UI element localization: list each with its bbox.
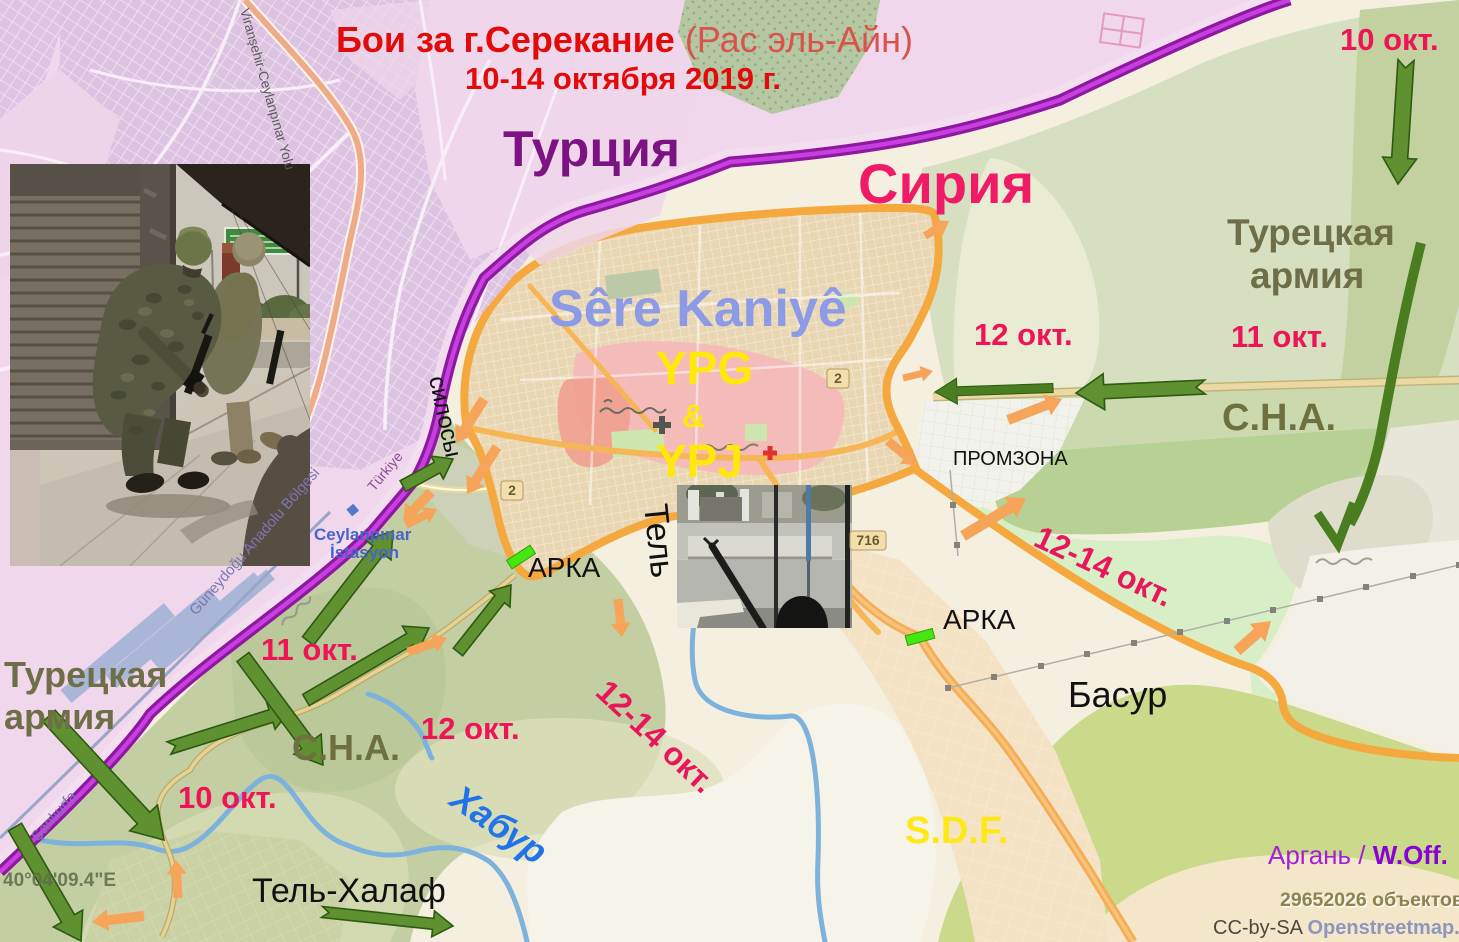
svg-text:40°04'09.4"E: 40°04'09.4"E	[3, 870, 116, 891]
svg-text:АРКА: АРКА	[943, 604, 1016, 635]
svg-text:С.Н.А.: С.Н.А.	[292, 727, 400, 768]
svg-text:Тель-Халаф: Тель-Халаф	[252, 872, 446, 910]
svg-text:&: &	[682, 398, 705, 434]
svg-text:Басур: Басур	[1068, 674, 1167, 715]
svg-text:Турция: Турция	[503, 121, 680, 177]
svg-text:Турецкая: Турецкая	[4, 654, 167, 695]
svg-text:армия: армия	[1250, 255, 1364, 296]
svg-text:CC-by-SA Openstreetmap.org: CC-by-SA Openstreetmap.org	[1213, 917, 1459, 939]
svg-text:Бои за г.Серекание (Рас эль-Ай: Бои за г.Серекание (Рас эль-Айн)	[336, 19, 913, 60]
svg-text:Sêre Kaniyê: Sêre Kaniyê	[549, 280, 847, 338]
svg-text:12 окт.: 12 окт.	[421, 711, 520, 746]
svg-text:İstasyon: İstasyon	[330, 543, 399, 562]
svg-text:Ceylanpınar: Ceylanpınar	[314, 525, 412, 544]
svg-text:ПРОМЗОНА: ПРОМЗОНА	[953, 448, 1068, 470]
svg-text:Аргань / W.Off.: Аргань / W.Off.	[1268, 840, 1448, 870]
svg-text:Сирия: Сирия	[858, 152, 1034, 215]
svg-text:10 окт.: 10 окт.	[1340, 22, 1439, 57]
svg-text:YPJ: YPJ	[656, 435, 743, 487]
svg-text:Турецкая: Турецкая	[1227, 212, 1395, 253]
svg-text:YPG: YPG	[656, 342, 753, 394]
svg-text:29652026 объектов: 29652026 объектов	[1280, 889, 1459, 911]
svg-text:АРКА: АРКА	[528, 552, 601, 583]
svg-text:Тель: Тель	[636, 502, 682, 580]
svg-text:10-14 октября 2019 г.: 10-14 октября 2019 г.	[465, 61, 781, 96]
svg-text:S.D.F.: S.D.F.	[905, 810, 1008, 852]
svg-text:716: 716	[856, 532, 880, 548]
svg-text:армия: армия	[4, 696, 115, 737]
svg-text:12 окт.: 12 окт.	[974, 317, 1073, 352]
svg-text:2: 2	[834, 370, 842, 386]
svg-text:11 окт.: 11 окт.	[1231, 319, 1328, 354]
svg-text:С.Н.А.: С.Н.А.	[1222, 397, 1336, 439]
svg-text:2: 2	[508, 482, 516, 498]
svg-text:11 окт.: 11 окт.	[261, 632, 358, 667]
svg-text:10 окт.: 10 окт.	[178, 780, 277, 815]
